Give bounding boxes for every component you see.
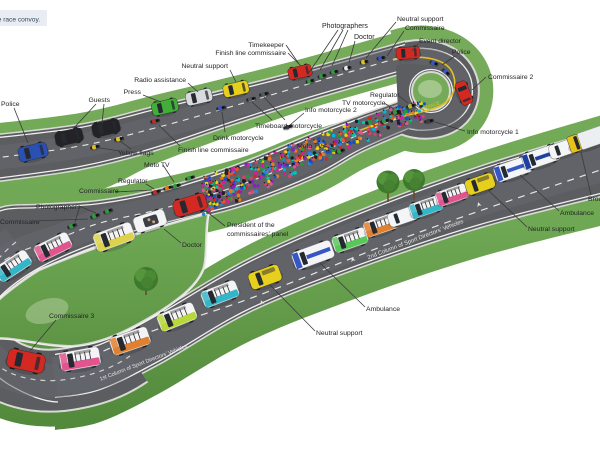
svg-text:Police: Police (1, 101, 20, 108)
svg-text:Yellow flags: Yellow flags (118, 150, 154, 157)
svg-text:Ambulance: Ambulance (366, 306, 400, 313)
svg-text:Doctor: Doctor (354, 34, 375, 41)
svg-text:Event director: Event director (419, 38, 462, 45)
svg-text:commissaires’ panel: commissaires’ panel (227, 231, 289, 238)
svg-text:Timekeeper: Timekeeper (248, 42, 284, 49)
svg-text:Info motorcycle 1: Info motorcycle 1 (467, 129, 519, 136)
svg-text:Finish line commissaire: Finish line commissaire (178, 147, 249, 154)
svg-text:Guests: Guests (88, 97, 110, 104)
svg-text:The race convoy.: The race convoy. (0, 17, 40, 24)
svg-text:Neutral support: Neutral support (316, 330, 363, 337)
svg-text:Ambulance: Ambulance (560, 210, 594, 217)
svg-text:TV motorcycle: TV motorcycle (342, 100, 386, 107)
svg-text:Commissaire 3: Commissaire 3 (49, 313, 95, 320)
svg-text:Drink motorcycle: Drink motorcycle (213, 135, 264, 142)
svg-text:Moto TV: Moto TV (144, 162, 170, 169)
svg-text:Regulator: Regulator (370, 92, 400, 99)
svg-text:Finish line commissaire: Finish line commissaire (215, 50, 286, 57)
svg-text:Timeboard motorcycle: Timeboard motorcycle (255, 123, 322, 130)
svg-text:Photographers: Photographers (36, 204, 81, 211)
svg-text:Regulator: Regulator (118, 178, 148, 185)
svg-text:Commissaire: Commissaire (0, 219, 40, 226)
svg-text:Info motorcycle 2: Info motorcycle 2 (305, 107, 357, 114)
svg-text:Neutral support: Neutral support (397, 16, 444, 23)
svg-text:Neutral support: Neutral support (182, 63, 229, 70)
svg-text:Neutral support: Neutral support (528, 226, 575, 233)
svg-text:Commissaire: Commissaire (79, 188, 119, 195)
svg-text:Commissaire: Commissaire (405, 25, 445, 32)
svg-text:Police: Police (452, 49, 471, 56)
svg-text:Broadcast: Broadcast (588, 196, 600, 203)
svg-text:President of the: President of the (227, 222, 275, 229)
svg-text:Photographers: Photographers (322, 23, 368, 30)
svg-text:Press: Press (124, 89, 142, 96)
svg-text:Radio assistance: Radio assistance (134, 77, 186, 84)
svg-text:Doctor: Doctor (182, 242, 203, 249)
svg-text:Commissaire 2: Commissaire 2 (488, 74, 534, 81)
svg-text:Moto TV: Moto TV (297, 143, 323, 150)
